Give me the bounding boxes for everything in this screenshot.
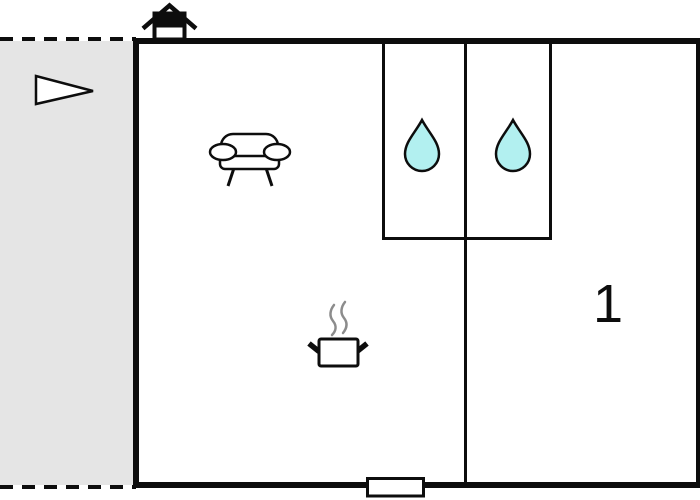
sofa-leg-left (228, 168, 234, 186)
sofa-armrest-left (210, 144, 236, 160)
outer-walls (136, 41, 699, 485)
house-orientation-icon (143, 6, 196, 40)
window-marker (368, 479, 424, 497)
steam-icon (341, 302, 346, 333)
water-drop-icon (405, 120, 439, 171)
floorplan-page: 1 (0, 0, 700, 500)
sofa-icon (210, 134, 290, 186)
floorplan-svg: 1 (0, 0, 700, 500)
pot-body (319, 339, 358, 366)
cooking-pot-icon (309, 302, 367, 366)
terrace-area (0, 41, 133, 485)
room-label: 1 (593, 274, 623, 334)
sofa-leg-right (266, 168, 272, 186)
water-drop-icon (496, 120, 530, 171)
steam-icon (330, 305, 335, 335)
sofa-armrest-right (264, 144, 290, 160)
